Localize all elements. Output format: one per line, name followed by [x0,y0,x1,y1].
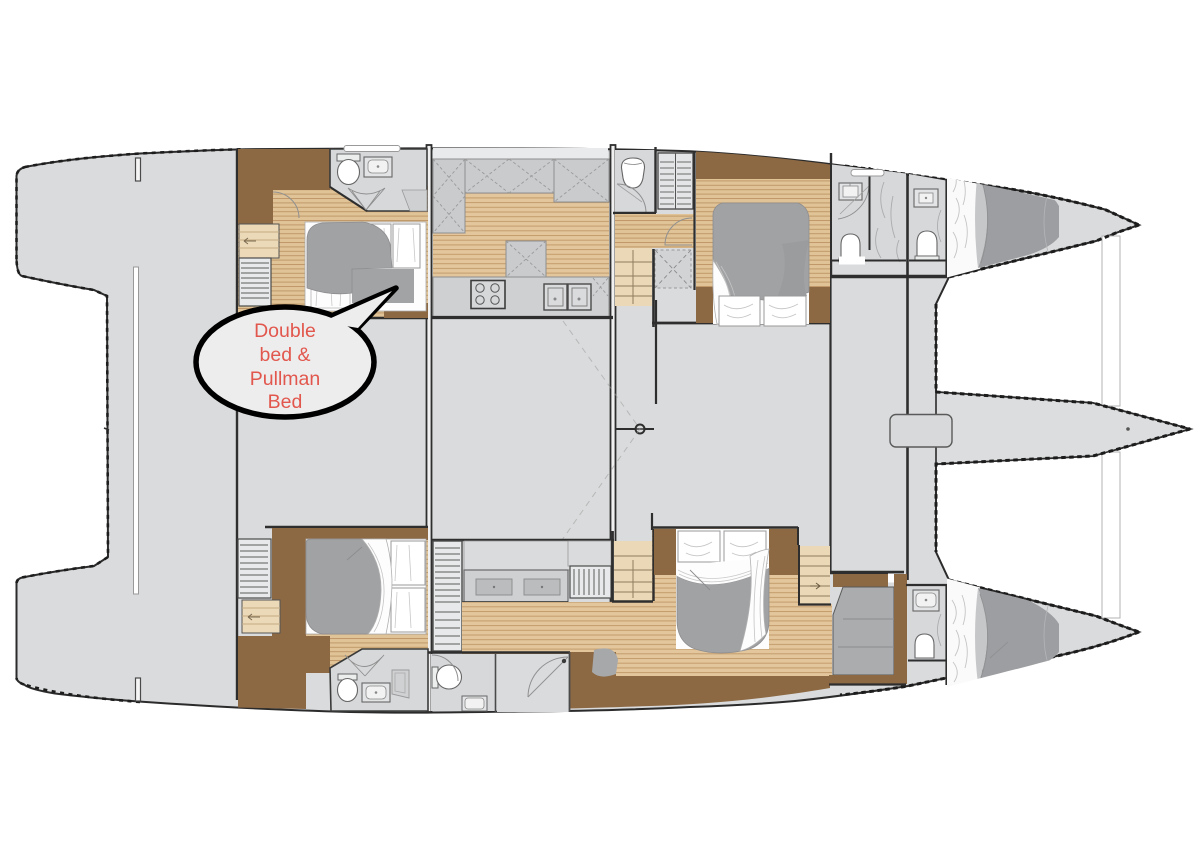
svg-text:Bed: Bed [268,391,303,413]
svg-text:bed &: bed & [260,344,311,366]
svg-text:Double: Double [254,320,316,342]
svg-text:Pullman: Pullman [250,368,320,390]
